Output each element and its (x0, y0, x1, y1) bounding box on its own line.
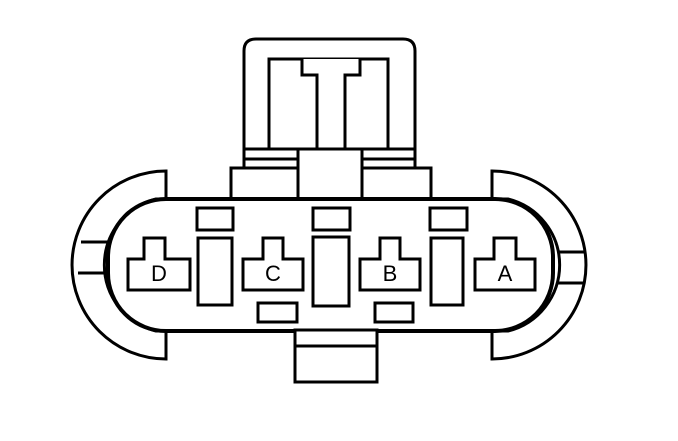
terminal-d-label: D (151, 261, 167, 286)
divider-slot-2 (313, 237, 349, 306)
connector-face-view-diagram: D C B A (0, 0, 678, 441)
bottom-index-slot-2 (375, 303, 413, 322)
latch-center-channel (298, 149, 362, 200)
latch-base-block-left (231, 168, 298, 200)
top-index-slot-1 (197, 208, 233, 230)
bottom-tab-outline (295, 330, 377, 382)
bottom-tab (295, 330, 377, 382)
top-index-slot-3 (430, 208, 467, 230)
bottom-index-slot-1 (258, 303, 297, 322)
divider-slot-1 (198, 238, 232, 305)
latch-assembly (231, 39, 431, 200)
latch-base-block-right (362, 168, 431, 200)
terminal-b-label: B (383, 261, 398, 286)
divider-slot-3 (431, 238, 463, 305)
connector-diagram-page: D C B A (0, 0, 678, 441)
terminal-c-label: C (265, 261, 281, 286)
top-index-slot-2 (313, 208, 350, 230)
terminal-a-label: A (498, 261, 513, 286)
